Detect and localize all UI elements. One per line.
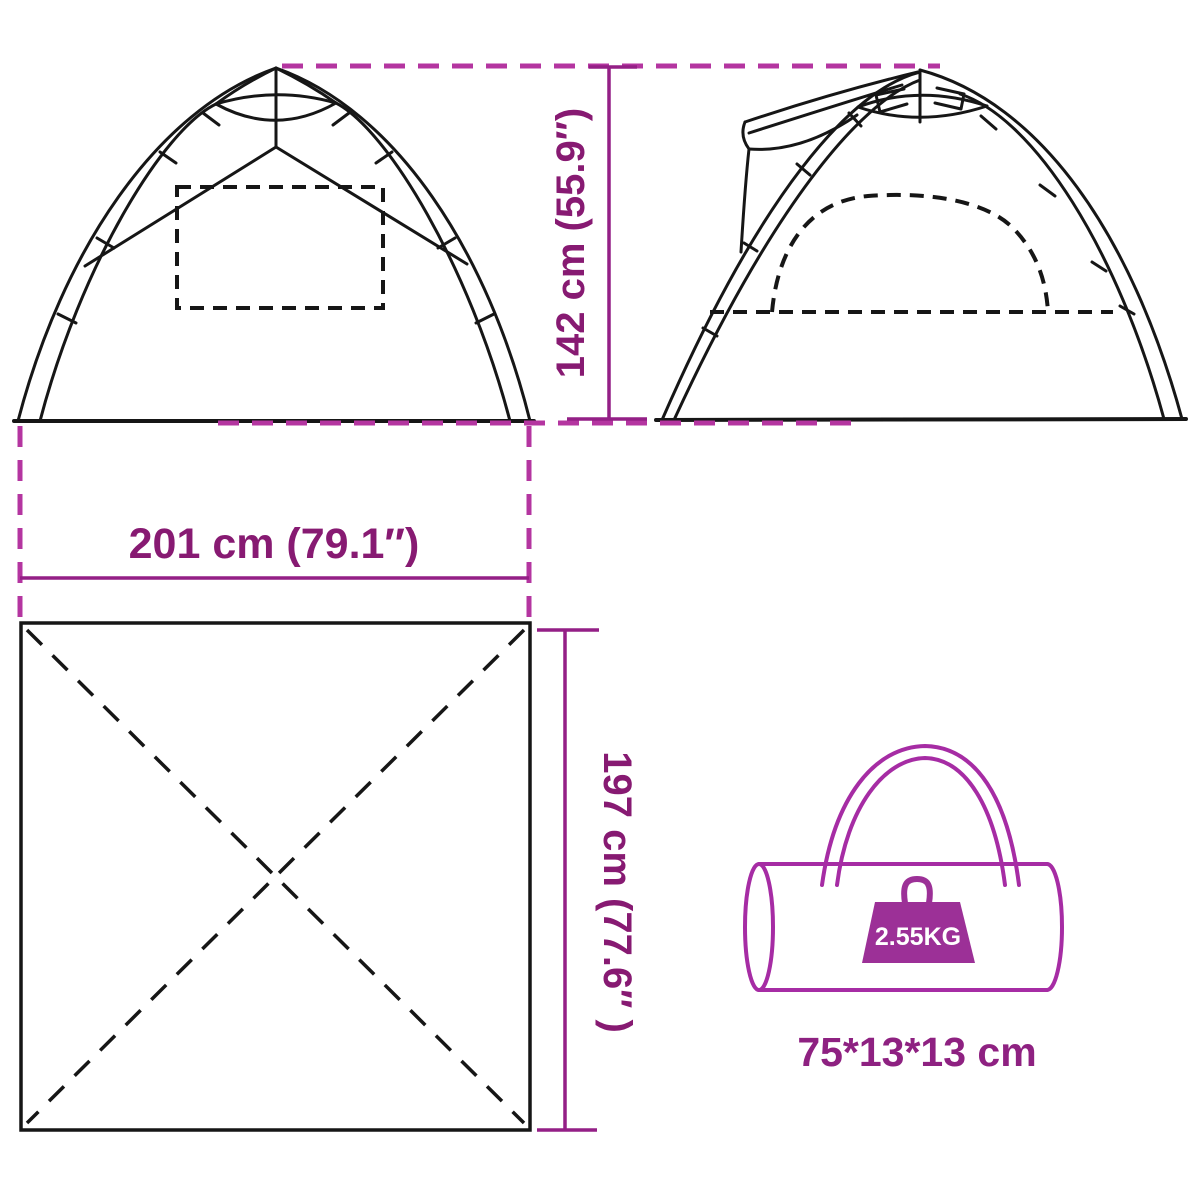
floor-plan: [21, 623, 530, 1130]
height-dimension-label: 142 cm (55.9″): [549, 108, 593, 378]
depth-dimension-label: 197 cm (77.6″ ): [595, 751, 639, 1033]
diagram-svg: 142 cm (55.9″) 201 cm (79.1″) 197 cm (77…: [0, 0, 1200, 1200]
weight-icon: 2.55KG: [862, 879, 975, 963]
tent-side-view: [656, 70, 1186, 420]
height-dimension: 142 cm (55.9″): [218, 66, 940, 423]
bag-weight-label: 2.55KG: [875, 923, 961, 951]
bag-size-label: 75*13*13 cm: [797, 1029, 1036, 1075]
tent-front-view: [14, 68, 534, 421]
front-window-outline: [177, 187, 383, 308]
floor-plan-outline: [21, 623, 530, 1130]
bag-right-cap: [1047, 864, 1062, 990]
width-dimension: 201 cm (79.1″): [20, 426, 529, 618]
carry-bag-icon: 2.55KG 75*13*13 cm: [745, 746, 1062, 1075]
depth-dimension: 197 cm (77.6″ ): [537, 630, 639, 1130]
tent-dimension-diagram: 142 cm (55.9″) 201 cm (79.1″) 197 cm (77…: [0, 0, 1200, 1200]
width-dimension-label: 201 cm (79.1″): [129, 520, 420, 568]
side-door-outline: [772, 195, 1048, 312]
bag-left-cap: [745, 864, 773, 990]
